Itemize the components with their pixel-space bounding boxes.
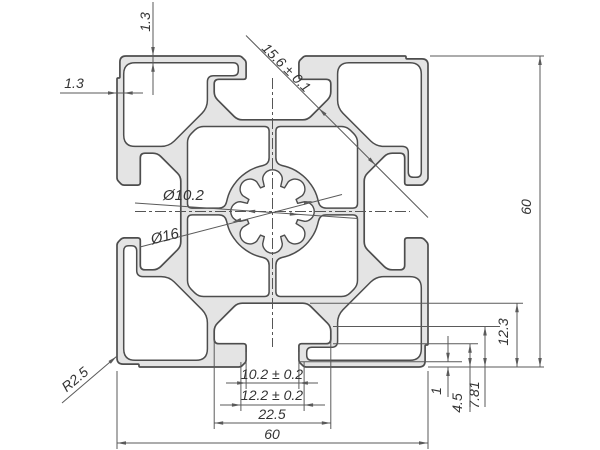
arrowhead (108, 91, 117, 95)
dim-label-left-wall: 1.3 (64, 75, 84, 91)
dim-label-cavity-depth: 12.3 (495, 318, 511, 345)
arrowhead (483, 358, 487, 367)
arrowhead (304, 403, 313, 407)
extrusion-profile-drawing: 1.3 1.3 15.6 ± 0.1 Ø10.2 Ø16 60 R2.5 10.… (0, 0, 600, 450)
arrowhead (446, 353, 450, 362)
arrowhead (232, 403, 241, 407)
arrowhead (538, 358, 542, 367)
dim-label-lip-chamfer-depth: 1 (428, 387, 444, 395)
dim-label-top-wall: 1.3 (137, 12, 153, 32)
dim-label-corner-radius: R2.5 (58, 363, 91, 394)
dim-label-slot-opening: 10.2 ± 0.2 (241, 366, 303, 382)
arrowhead (538, 56, 542, 65)
arrowhead (515, 303, 519, 312)
arrowhead (214, 421, 223, 425)
dim-label-width: 60 (264, 426, 280, 442)
dim-label-bore-small: Ø10.2 (162, 187, 205, 204)
arrowhead (117, 441, 126, 445)
dim-label-height: 60 (518, 199, 534, 215)
arrowhead (151, 47, 155, 56)
drawing-sheet: 1.3 1.3 15.6 ± 0.1 Ø10.2 Ø16 60 R2.5 10.… (0, 0, 600, 450)
arrowhead (322, 421, 331, 425)
dim-label-bore-large: Ø16 (148, 225, 181, 249)
dim-label-slot-opening-outer: 12.2 ± 0.2 (241, 387, 303, 403)
dim-label-lip-depth: 4.5 (449, 393, 465, 413)
dim-label-slot-cavity-width: 22.5 (257, 406, 285, 422)
arrowhead (515, 358, 519, 367)
arrowhead (483, 327, 487, 336)
arrowhead (446, 367, 450, 376)
arrowhead (468, 358, 472, 367)
arrowhead (419, 441, 428, 445)
arrowhead (468, 344, 472, 353)
dim-label-chamfer-start-depth: 7.81 (466, 381, 482, 408)
